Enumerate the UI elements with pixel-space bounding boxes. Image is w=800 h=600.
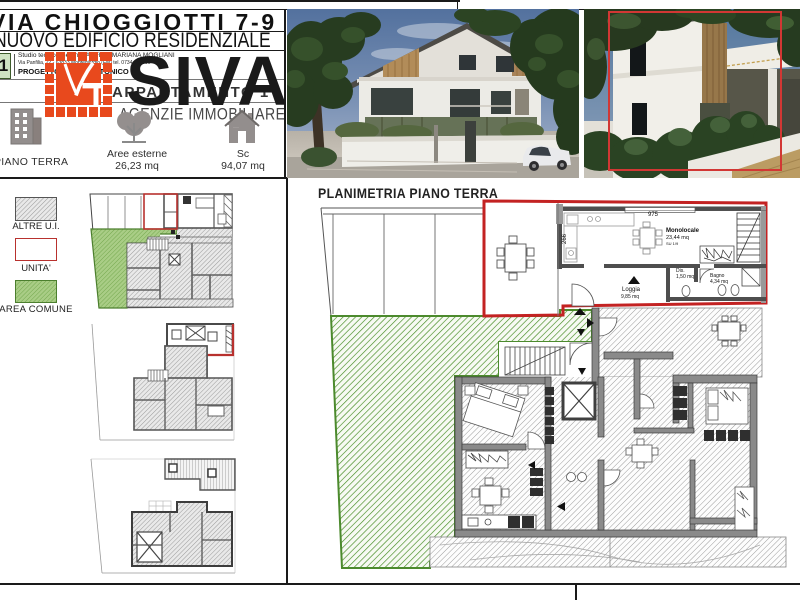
svg-text:SU 1/9: SU 1/9 [666, 241, 679, 246]
svg-text:1,50 mq: 1,50 mq [676, 274, 694, 280]
svg-text:Monolocale: Monolocale [666, 228, 700, 234]
svg-text:975: 975 [648, 212, 659, 218]
svg-text:9,85 mq: 9,85 mq [621, 294, 639, 300]
svg-text:Loggia: Loggia [622, 287, 641, 293]
svg-text:4,34 mq: 4,34 mq [710, 279, 728, 285]
svg-text:266: 266 [562, 233, 568, 244]
